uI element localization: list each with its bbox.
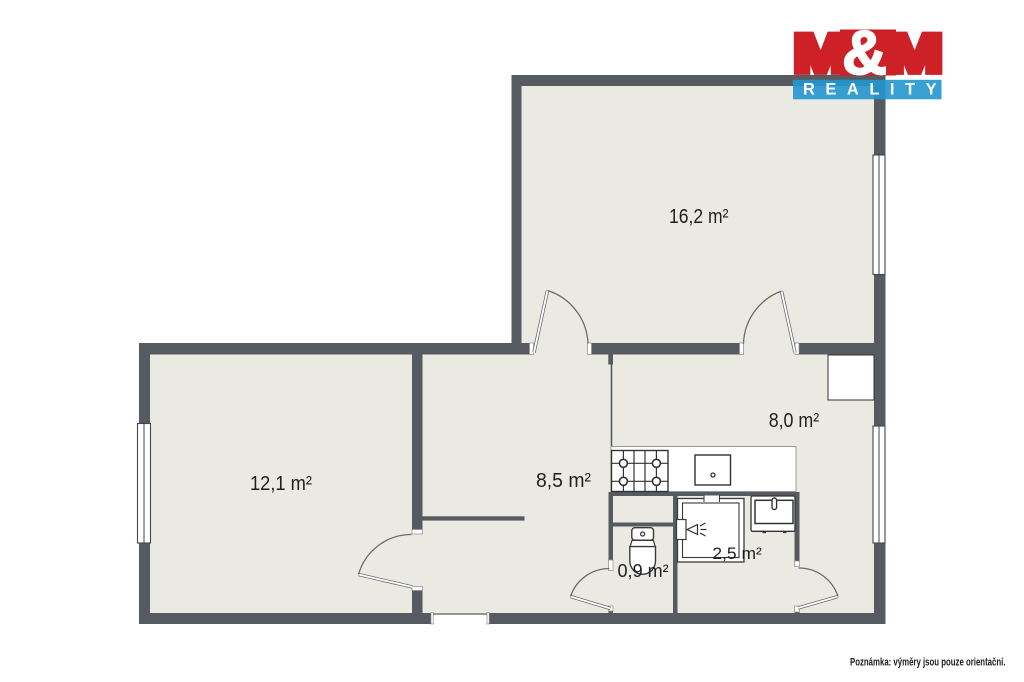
svg-text:0,9 m²: 0,9 m² (618, 561, 669, 581)
svg-text:8,0 m²: 8,0 m² (769, 409, 820, 432)
svg-text:8,5 m²: 8,5 m² (536, 469, 591, 492)
svg-text:M: M (886, 23, 942, 82)
svg-text:2,5 m²: 2,5 m² (712, 544, 762, 563)
svg-text:16,2 m²: 16,2 m² (669, 205, 729, 228)
svg-text:&: & (842, 19, 887, 88)
svg-text:Poznámka: výměry jsou pouze or: Poznámka: výměry jsou pouze orientační. (850, 657, 1006, 669)
svg-text:12,1 m²: 12,1 m² (250, 472, 312, 495)
svg-text:M: M (794, 23, 848, 83)
svg-text:REALITY: REALITY (803, 81, 947, 99)
